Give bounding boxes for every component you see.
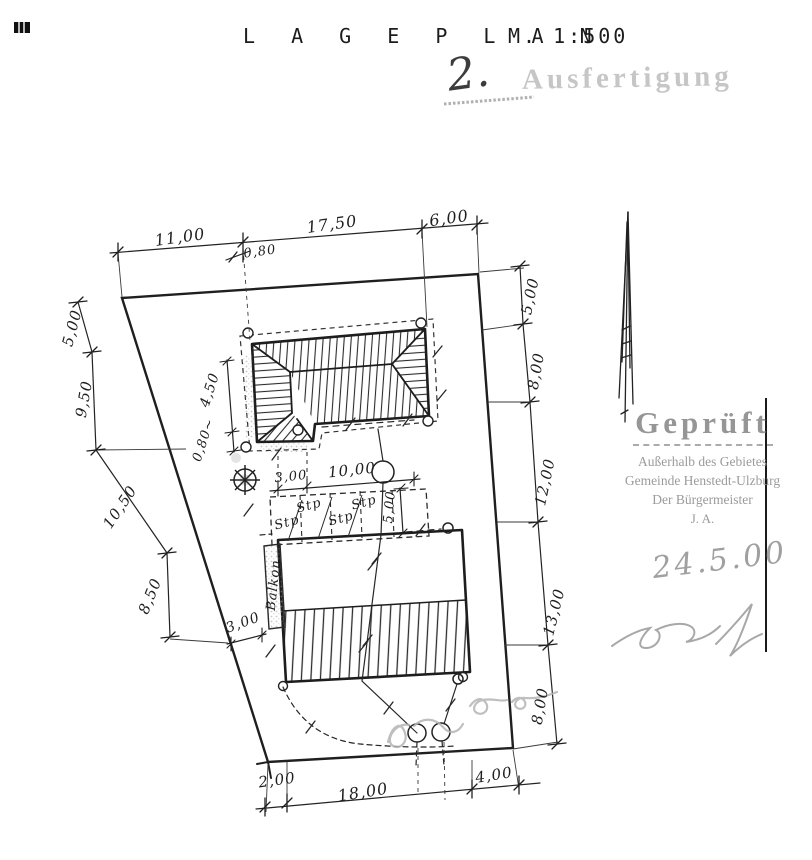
dimension-label: 5,00 [381, 490, 399, 524]
approval-stamp-line: Gemeinde Henstedt-Ulzburg [595, 471, 810, 490]
eave-stipple [258, 442, 308, 452]
tree-symbol [230, 453, 260, 495]
scan-artifact-mark [14, 22, 30, 33]
approval-stamp-line: J. A. [595, 511, 810, 527]
dimension-ticks [69, 216, 566, 816]
upper-building [240, 318, 438, 452]
approval-stamp-title: Geprüft [595, 405, 810, 441]
dimension-lines [78, 223, 557, 809]
handwritten-copy-number: 2. [444, 45, 493, 101]
scale-label: M. 1:500 [508, 24, 628, 48]
approval-stamp-line: Außerhalb des Gebietes [595, 452, 810, 471]
approval-stamp-underline [633, 444, 773, 446]
approval-stamp: Geprüft Außerhalb des Gebietes Gemeinde … [595, 405, 810, 527]
lageplan-sheet: L A G E P L A N M. 1:500 2. Ausfertigung… [0, 0, 812, 860]
copy-stamp-text: Ausfertigung [522, 60, 733, 97]
north-arrow [619, 212, 633, 422]
lower-building [264, 530, 470, 691]
approval-stamp-line: Der Bürgermeister [595, 490, 810, 509]
signature-squiggle [612, 604, 762, 656]
